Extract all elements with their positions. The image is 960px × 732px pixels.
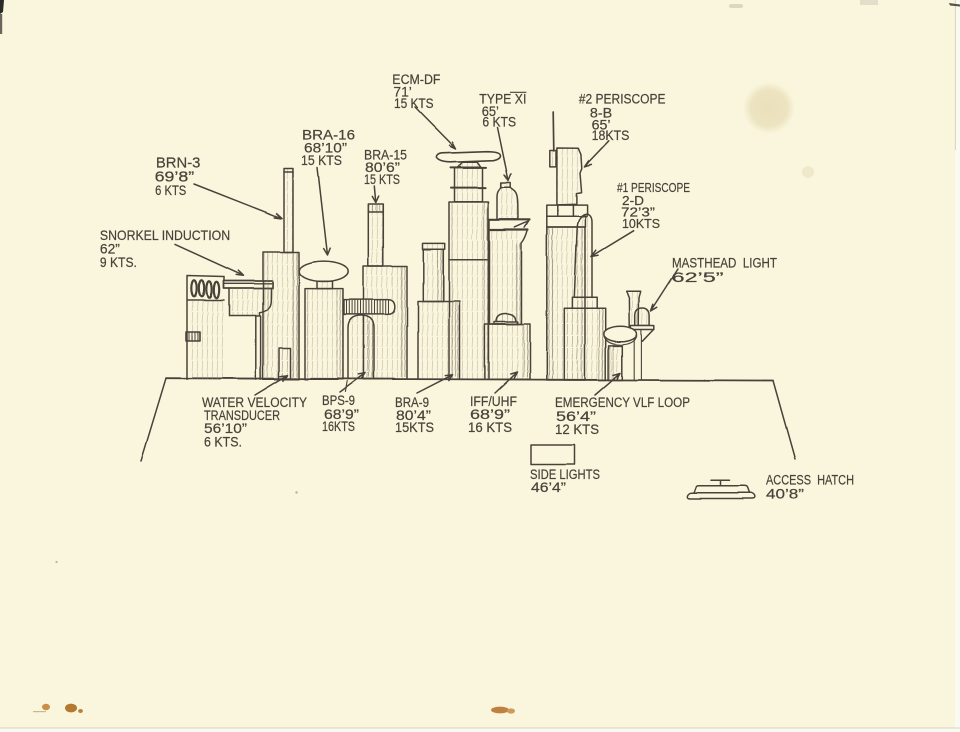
svg-text:40’8”: 40’8” bbox=[766, 487, 804, 502]
svg-text:#2 PERISCOPE: #2 PERISCOPE bbox=[579, 92, 666, 107]
svg-text:15 KTS: 15 KTS bbox=[301, 153, 342, 168]
svg-text:16KTS: 16KTS bbox=[322, 419, 355, 434]
svg-text:#1 PERISCOPE: #1 PERISCOPE bbox=[617, 181, 690, 195]
svg-text:6 KTS.: 6 KTS. bbox=[204, 435, 242, 450]
svg-text:6 KTS: 6 KTS bbox=[482, 115, 516, 130]
svg-text:15 KTS: 15 KTS bbox=[364, 172, 400, 187]
svg-text:16 KTS: 16 KTS bbox=[468, 420, 512, 435]
svg-text:ACCESS HATCH: ACCESS HATCH bbox=[766, 473, 854, 488]
svg-text:6 KTS: 6 KTS bbox=[155, 182, 186, 198]
svg-text:62’5”: 62’5” bbox=[672, 270, 724, 285]
svg-text:MASTHEAD LIGHT: MASTHEAD LIGHT bbox=[672, 256, 777, 271]
svg-text:18KTS: 18KTS bbox=[592, 128, 630, 143]
svg-text:15KTS: 15KTS bbox=[395, 420, 434, 435]
svg-text:9 KTS.: 9 KTS. bbox=[100, 254, 137, 270]
svg-text:46’4”: 46’4” bbox=[531, 480, 566, 495]
svg-text:12 KTS: 12 KTS bbox=[555, 422, 599, 437]
svg-text:15 KTS: 15 KTS bbox=[394, 96, 434, 111]
svg-text:10KTS: 10KTS bbox=[622, 217, 660, 231]
svg-text:BPS-9: BPS-9 bbox=[322, 393, 355, 408]
svg-text:EMERGENCY VLF LOOP: EMERGENCY VLF LOOP bbox=[555, 395, 690, 410]
